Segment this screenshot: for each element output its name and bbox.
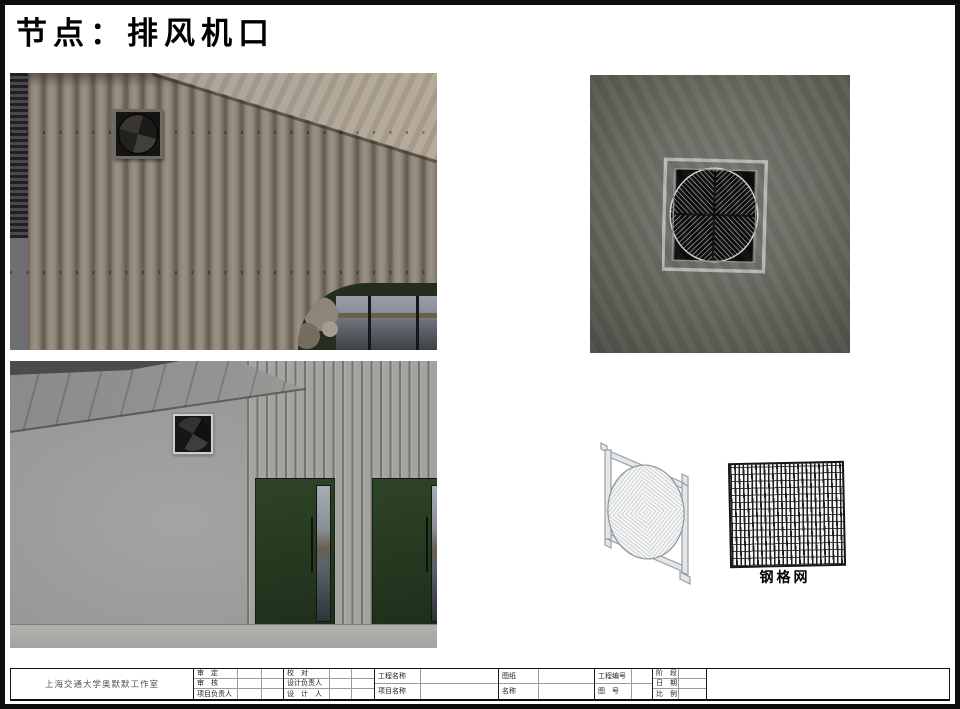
background-sky-strip xyxy=(10,238,28,350)
render-ribbed-facade-photo xyxy=(10,73,437,350)
interior-shelf xyxy=(336,313,437,318)
tb-label: 比 例 xyxy=(653,689,679,699)
tb-design-group: 校 对 设计负责人 设 计 人 xyxy=(284,669,375,699)
mesh-label: 钢格网 xyxy=(729,567,841,587)
tb-label: 审 定 xyxy=(194,669,238,679)
tb-project-name-group: 工程名称 项目名称 xyxy=(375,669,499,699)
tb-value xyxy=(679,679,706,689)
tb-value xyxy=(679,689,706,699)
tb-drawing-name-group: 图纸 名称 xyxy=(499,669,595,699)
exhaust-vent-small xyxy=(173,414,213,454)
tb-value xyxy=(421,669,498,684)
porthole-circle xyxy=(322,321,338,337)
tb-value xyxy=(421,684,498,699)
tb-value xyxy=(330,689,352,699)
exhaust-vent-small xyxy=(113,109,163,159)
porthole-circle xyxy=(298,323,320,349)
tb-label: 日 期 xyxy=(653,679,679,689)
tb-value xyxy=(330,669,352,679)
tb-value xyxy=(352,689,374,699)
vent-frame-axon-diagram xyxy=(598,438,708,588)
door-handle xyxy=(311,517,313,572)
storefront-glass xyxy=(336,296,437,350)
fan-blades xyxy=(176,417,210,451)
door-sidelight xyxy=(316,485,331,622)
tb-empty-cell xyxy=(707,669,949,699)
tb-value xyxy=(679,669,706,679)
render-doors-facade-photo xyxy=(10,361,437,648)
page-title: 节点：排风机口 xyxy=(16,8,275,53)
tb-value xyxy=(539,669,594,684)
tb-value xyxy=(262,689,283,699)
tb-label: 名称 xyxy=(499,684,539,699)
tb-value xyxy=(632,669,652,684)
wall-seam xyxy=(10,131,437,134)
tb-label: 项目负责人 xyxy=(194,689,238,699)
louver-strip xyxy=(10,73,28,238)
tb-value xyxy=(262,669,283,679)
tb-value xyxy=(352,669,374,679)
vent-grille-graphic xyxy=(662,157,768,275)
studio-name: 上海交通大学奥默默工作室 xyxy=(45,680,159,689)
mullion xyxy=(368,296,371,350)
tb-label: 审 核 xyxy=(194,679,238,689)
tb-label: 图纸 xyxy=(499,669,539,684)
tb-value xyxy=(539,684,594,699)
tb-stage-group: 阶 段 日 期 比 例 xyxy=(653,669,707,699)
tb-value xyxy=(238,679,262,689)
tb-value xyxy=(330,679,352,689)
green-door xyxy=(255,478,335,628)
tb-label: 项目名称 xyxy=(375,684,421,699)
steel-mesh-diagram xyxy=(728,461,846,568)
tb-label: 设计负责人 xyxy=(284,679,330,689)
tb-label: 图 号 xyxy=(595,684,632,699)
tb-label: 设 计 人 xyxy=(284,689,330,699)
tb-label: 工程编号 xyxy=(595,669,632,684)
tb-label: 校 对 xyxy=(284,669,330,679)
tb-label: 阶 段 xyxy=(653,669,679,679)
green-door xyxy=(372,478,437,628)
tb-value xyxy=(238,669,262,679)
tb-value xyxy=(632,684,652,699)
tb-label: 工程名称 xyxy=(375,669,421,684)
mullion xyxy=(416,296,419,350)
tb-approval-group: 审 定 审 核 项目负责人 xyxy=(194,669,284,699)
door-handle xyxy=(426,517,428,572)
fan-blades xyxy=(118,114,158,154)
render-vent-closeup-photo xyxy=(590,75,850,353)
door-sidelight xyxy=(431,485,437,622)
tb-number-group: 工程编号 图 号 xyxy=(595,669,653,699)
wall-seam xyxy=(10,271,437,274)
tb-value xyxy=(262,679,283,689)
tb-value xyxy=(238,689,262,699)
tb-value xyxy=(352,679,374,689)
storefront-glazing xyxy=(298,283,437,350)
concrete-floor xyxy=(10,624,437,648)
title-block: 上海交通大学奥默默工作室 审 定 审 核 项目负责人 校 对 设计负责人 设 计… xyxy=(10,668,950,701)
tb-studio-cell: 上海交通大学奥默默工作室 xyxy=(11,669,194,699)
